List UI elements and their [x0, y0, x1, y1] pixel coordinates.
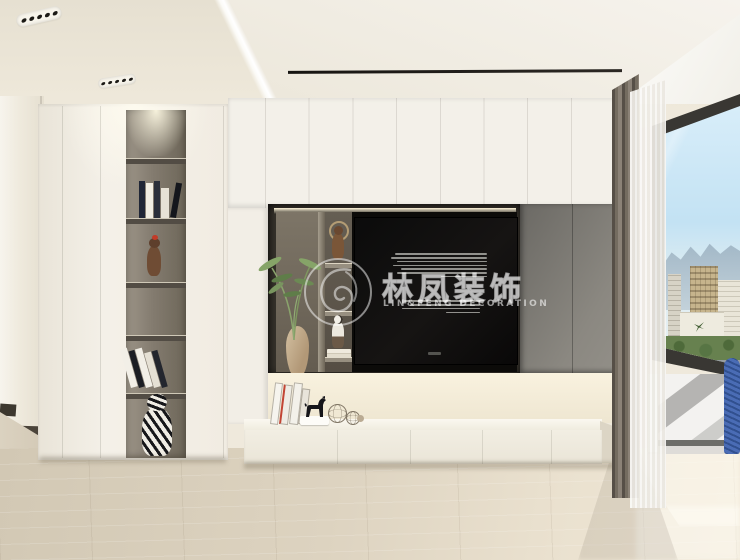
drawer-seam: [337, 430, 338, 464]
book-stack: [327, 349, 351, 358]
cabinet-floor-shadow: [40, 456, 226, 463]
cabinet-seam: [62, 106, 63, 458]
monkey-figurine-head: [334, 226, 343, 235]
shelf-board: [126, 282, 186, 288]
zebra-stripe-bear-figure: [142, 408, 172, 456]
astronaut-helmet: [334, 315, 343, 324]
dog-figurine: [303, 395, 329, 419]
tv-brand-mark: [428, 352, 441, 355]
window-glass-city-view: [664, 98, 740, 374]
cabinet-seam: [572, 204, 573, 373]
standing-books: [139, 180, 181, 218]
shelf-board: [126, 335, 186, 341]
wire-sphere-ornament: [328, 404, 347, 423]
bench-floor-shadow: [244, 462, 616, 469]
shelf-board: [126, 158, 186, 164]
tv-bench-drawers: [244, 430, 602, 464]
cabinet-seam: [223, 106, 224, 458]
astronaut-figurine: [332, 322, 344, 348]
living-room-interior-render: 林凤装饰 LIN&FENG DECORATION: [0, 0, 740, 560]
leaning-books: [131, 344, 183, 388]
monkey-figurine-red-cap: [152, 235, 158, 240]
drawer-seam: [410, 430, 411, 464]
glass-reflection: [664, 98, 740, 374]
blue-figure-sculpture: [724, 358, 740, 454]
tv-screen-mirrored-text-block: [391, 251, 487, 277]
plant-branches: [246, 230, 330, 342]
gray-cabinet-doors: [520, 204, 618, 373]
drawer-seam: [482, 430, 483, 464]
tv-screen: [354, 217, 518, 365]
upper-cabinet-doors: [228, 98, 620, 208]
shelf-board: [126, 218, 186, 224]
cabinet-seam: [100, 106, 101, 458]
drawer-seam: [551, 430, 552, 464]
tv-screen-mirrored-text-block: [402, 298, 480, 313]
monkey-figurine: [147, 246, 161, 276]
monkey-figurine: [332, 233, 344, 259]
sheer-curtain: [630, 80, 666, 508]
round-ornament: [357, 415, 364, 422]
shelf-top-light: [126, 110, 186, 156]
